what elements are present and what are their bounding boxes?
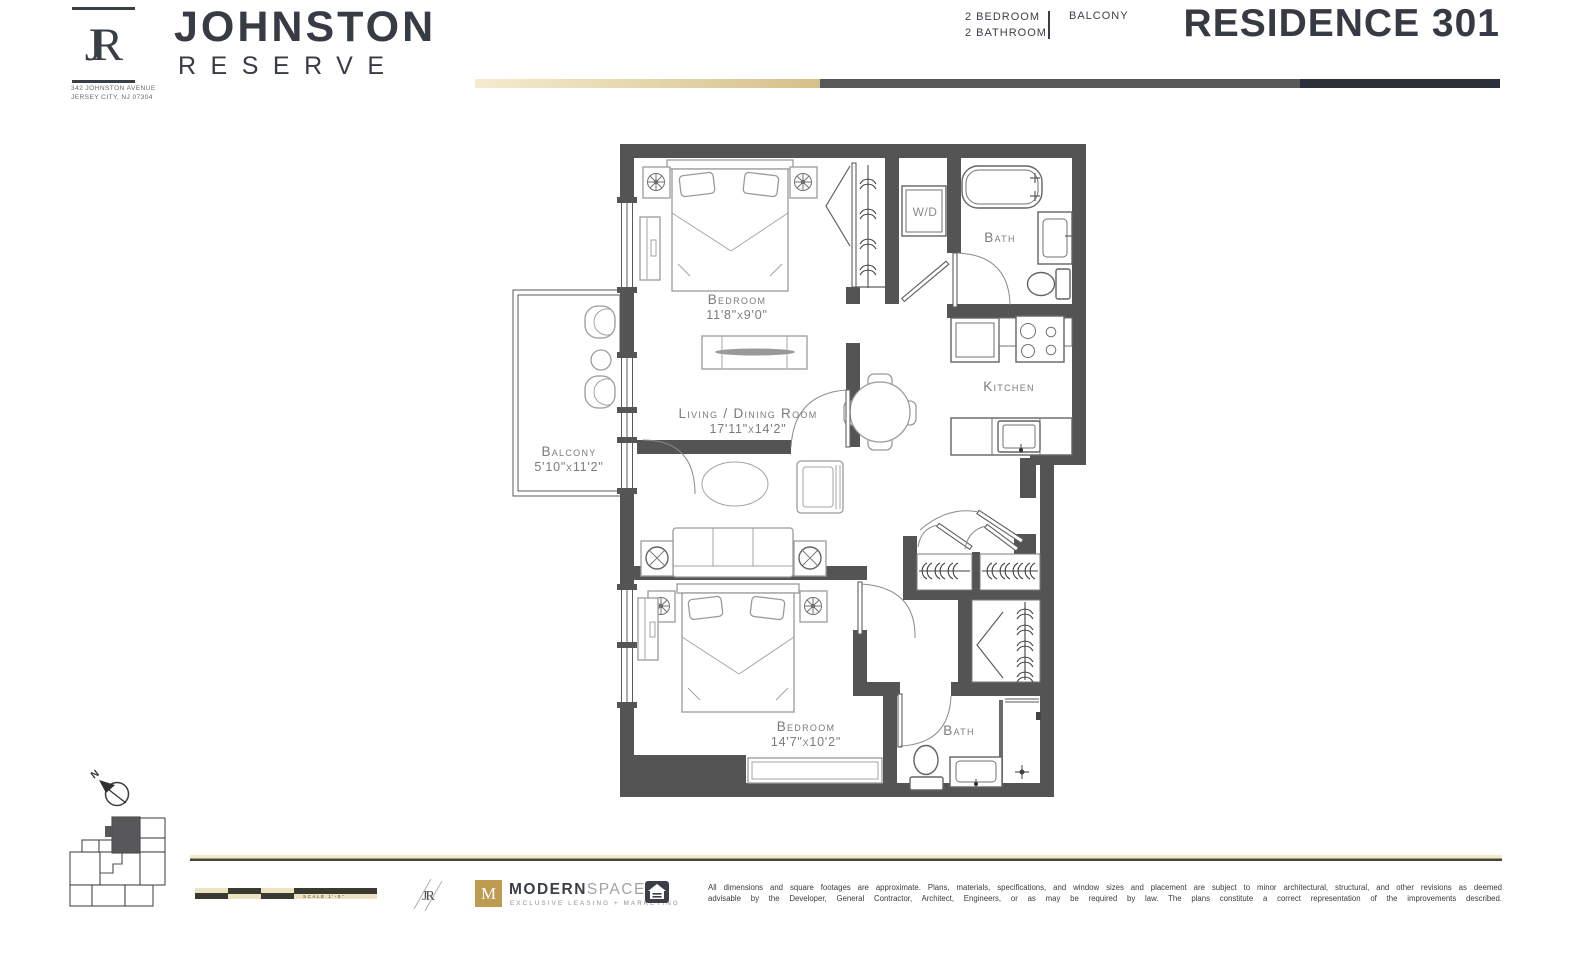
kitchen-sink bbox=[998, 421, 1040, 452]
footer-divider bbox=[190, 855, 1502, 861]
north-compass-icon: N bbox=[89, 768, 128, 805]
bath1-door bbox=[953, 253, 957, 307]
agency-name-bold: MODERN bbox=[509, 881, 587, 898]
shower-valve bbox=[1036, 712, 1041, 720]
rug bbox=[702, 462, 768, 506]
pillow bbox=[688, 596, 723, 620]
dining-table bbox=[850, 382, 910, 442]
bedroom2-door bbox=[858, 582, 862, 634]
bedroom1-closet bbox=[826, 163, 885, 288]
dresser bbox=[640, 217, 660, 280]
bed-headboard bbox=[667, 160, 793, 169]
kitchen-label: Kitchen bbox=[983, 379, 1035, 394]
key-plan bbox=[70, 817, 165, 906]
scale-label: SCALE 1'-0" bbox=[303, 894, 345, 899]
living-furniture bbox=[641, 336, 916, 577]
bath2-fixtures bbox=[898, 694, 1041, 790]
floorplan-canvas: W/D bbox=[0, 0, 1588, 966]
shower-drain bbox=[1020, 770, 1025, 775]
disclaimer-line1: All dimensions and square footages are a… bbox=[708, 883, 1502, 894]
lamp-icon bbox=[646, 547, 668, 569]
balcony-label: Balcony bbox=[541, 444, 596, 459]
bath2-door bbox=[898, 694, 902, 747]
bedroom2-window bbox=[617, 584, 637, 708]
disclaimer: All dimensions and square footages are a… bbox=[708, 883, 1502, 905]
toilet bbox=[914, 746, 938, 775]
balcony-table bbox=[591, 350, 611, 370]
tv bbox=[715, 349, 795, 356]
bedroom2-dims: 14'7"x10'2" bbox=[771, 735, 841, 749]
bedroom1-furniture bbox=[640, 160, 817, 291]
bedroom1-dims: 11'8"x9'0" bbox=[706, 308, 767, 322]
jr-mini-monogram: JR bbox=[414, 879, 442, 911]
pillow bbox=[750, 596, 785, 620]
lamp-icon bbox=[648, 174, 665, 191]
key-plan-unit-highlight bbox=[112, 817, 140, 853]
bedroom2-label: Bedroom bbox=[777, 719, 836, 734]
bedroom1-window bbox=[617, 197, 637, 293]
shower-door bbox=[1005, 699, 1039, 702]
agency-logo-icon: M bbox=[475, 880, 502, 907]
lamp-icon bbox=[795, 174, 812, 191]
closet-door bbox=[937, 523, 972, 549]
balcony-glass-doors bbox=[617, 352, 637, 494]
balcony-chair bbox=[585, 306, 615, 338]
bed-headboard bbox=[677, 584, 799, 593]
entry-door bbox=[902, 261, 949, 301]
compass-north-label: N bbox=[89, 768, 101, 781]
agency-name: MODERNSPACES bbox=[509, 881, 658, 899]
agency-initial: M bbox=[481, 884, 496, 904]
bath1-label: Bath bbox=[984, 230, 1016, 245]
balcony-chair bbox=[585, 376, 615, 408]
lamp-icon bbox=[805, 598, 822, 615]
washer-dryer: W/D bbox=[902, 186, 946, 236]
pillow bbox=[679, 172, 715, 197]
sofa bbox=[673, 528, 793, 577]
bathtub bbox=[962, 166, 1042, 208]
bedroom2-furniture bbox=[638, 584, 827, 712]
bedroom2-low-window bbox=[748, 758, 882, 783]
toilet bbox=[1028, 273, 1055, 296]
scale-bar: SCALE 1'-0" bbox=[195, 888, 377, 899]
equal-housing-icon bbox=[645, 881, 669, 905]
living-label: Living / Dining Room bbox=[678, 406, 817, 421]
closet-doors bbox=[826, 166, 850, 246]
balcony-dims: 5'10"x11'2" bbox=[534, 460, 603, 474]
bath2-label: Bath bbox=[943, 723, 975, 738]
refrigerator bbox=[951, 318, 999, 362]
lamp-icon bbox=[799, 547, 821, 569]
bedroom1-door bbox=[846, 390, 850, 447]
toilet-tank bbox=[1056, 269, 1070, 299]
wd-label: W/D bbox=[913, 205, 938, 219]
page: { "brand": { "monogram": "JR", "name": "… bbox=[0, 0, 1588, 966]
living-dims: 17'11"x14'2" bbox=[710, 422, 787, 436]
toilet-tank bbox=[910, 777, 943, 790]
pillow bbox=[743, 172, 779, 197]
bedroom1-label: Bedroom bbox=[708, 292, 767, 307]
closet-doors bbox=[977, 612, 1003, 678]
disclaimer-line2: advisable by the Developer, General Cont… bbox=[708, 894, 1502, 905]
